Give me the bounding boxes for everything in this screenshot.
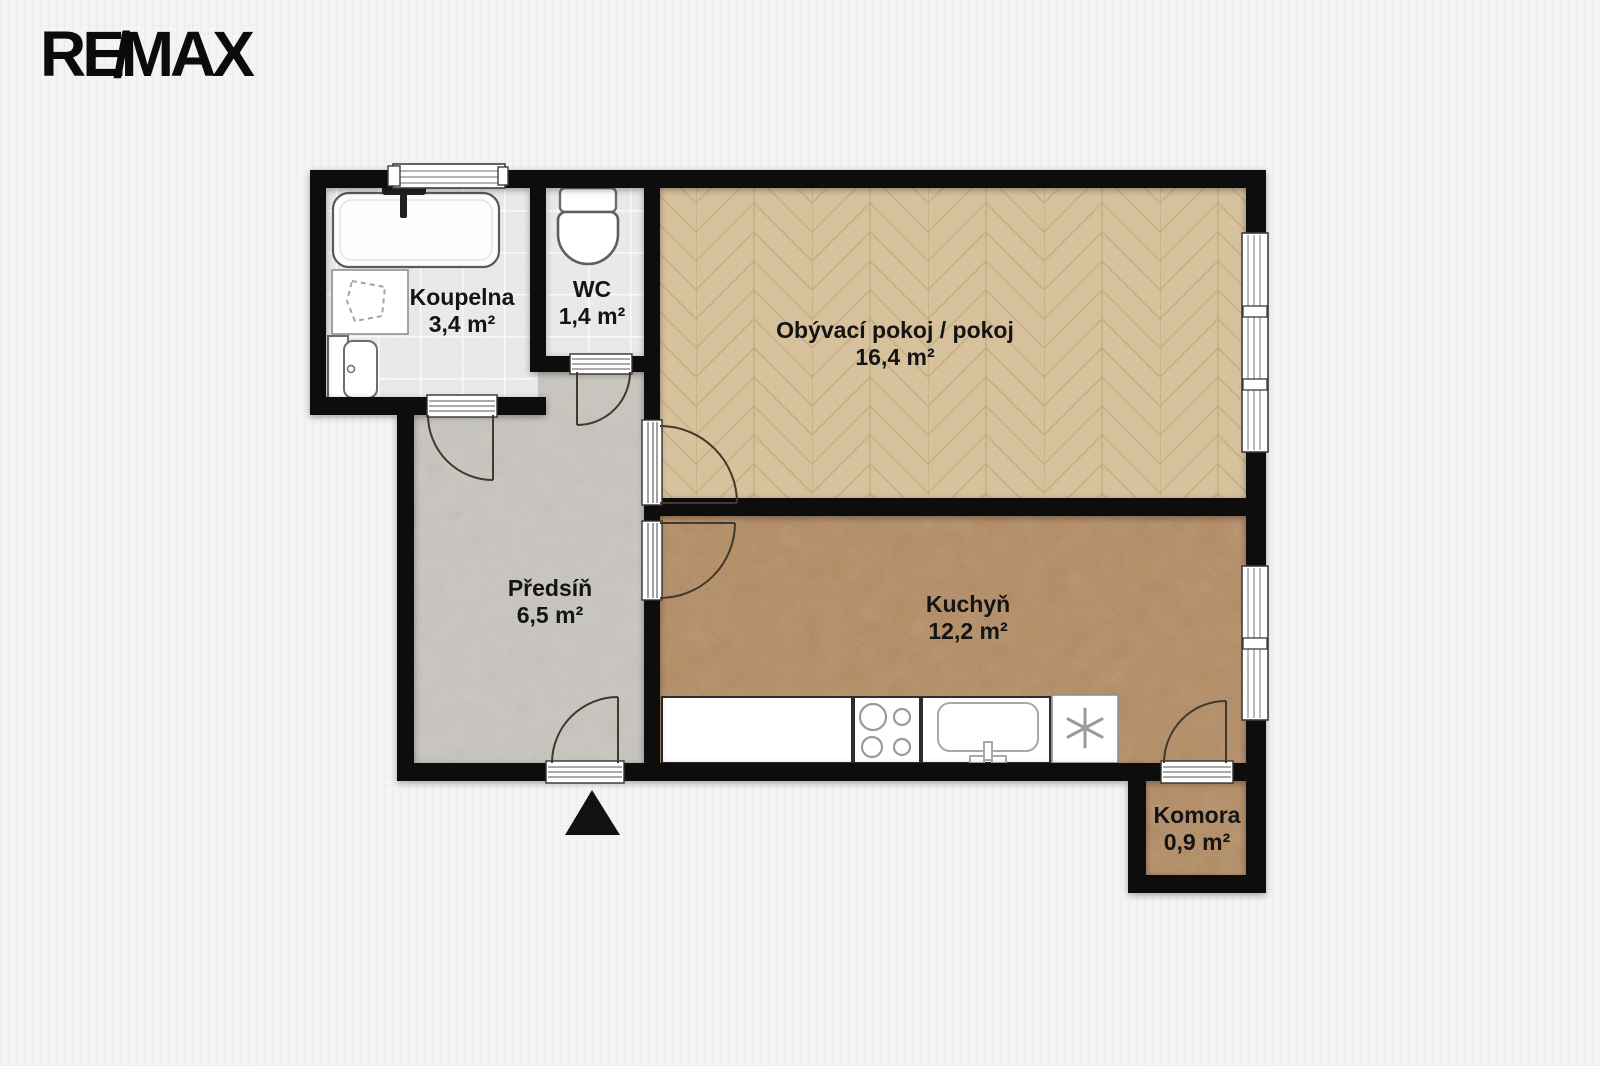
wall-bathroom-left xyxy=(310,170,326,415)
washbasin-icon xyxy=(328,336,377,400)
washing-machine-icon xyxy=(332,270,408,334)
room-area-wc: 1,4 m² xyxy=(559,303,626,329)
room-label-kuchyn: Kuchyň xyxy=(926,591,1010,617)
wc-fixtures xyxy=(558,188,618,264)
bathroom-door-frame xyxy=(427,395,497,417)
floorplan-page: RE/MAX xyxy=(0,0,1600,1066)
storage-door-frame xyxy=(1161,761,1233,783)
room-label-wc: WC xyxy=(573,276,611,302)
floorplan-drawing: Koupelna 3,4 m² WC 1,4 m² Obývací pokoj … xyxy=(0,0,1600,1066)
room-label-predsin: Předsíň xyxy=(508,575,592,601)
kitchen-door-frame xyxy=(642,521,662,600)
bathtub-icon xyxy=(333,193,499,267)
wall-bathroom-wc-divider xyxy=(530,170,546,372)
living-room-door-frame xyxy=(642,420,662,505)
wall-hallway-left xyxy=(397,397,414,781)
entrance-door-frame xyxy=(546,761,624,783)
kitchen-counter xyxy=(662,697,852,763)
wall-storage-bottom xyxy=(1128,875,1266,893)
room-area-koupelna: 3,4 m² xyxy=(429,311,496,337)
living-room-window xyxy=(1242,233,1268,452)
room-label-komora: Komora xyxy=(1154,802,1241,828)
wall-storage-left xyxy=(1128,763,1146,893)
room-area-obyvaci-pokoj: 16,4 m² xyxy=(855,344,935,370)
bathroom-window xyxy=(388,164,508,188)
room-area-kuchyn: 12,2 m² xyxy=(928,618,1008,644)
kitchen-fixtures xyxy=(662,695,1118,763)
room-area-komora: 0,9 m² xyxy=(1164,829,1231,855)
room-label-koupelna: Koupelna xyxy=(410,284,515,310)
wc-door-frame xyxy=(570,354,632,374)
room-area-predsin: 6,5 m² xyxy=(517,602,584,628)
toilet-icon xyxy=(558,212,618,264)
toilet-tank xyxy=(560,188,616,212)
room-label-obyvaci-pokoj: Obývací pokoj / pokoj xyxy=(776,317,1014,343)
entrance-arrow-icon xyxy=(565,790,620,835)
kitchen-window xyxy=(1242,566,1268,720)
